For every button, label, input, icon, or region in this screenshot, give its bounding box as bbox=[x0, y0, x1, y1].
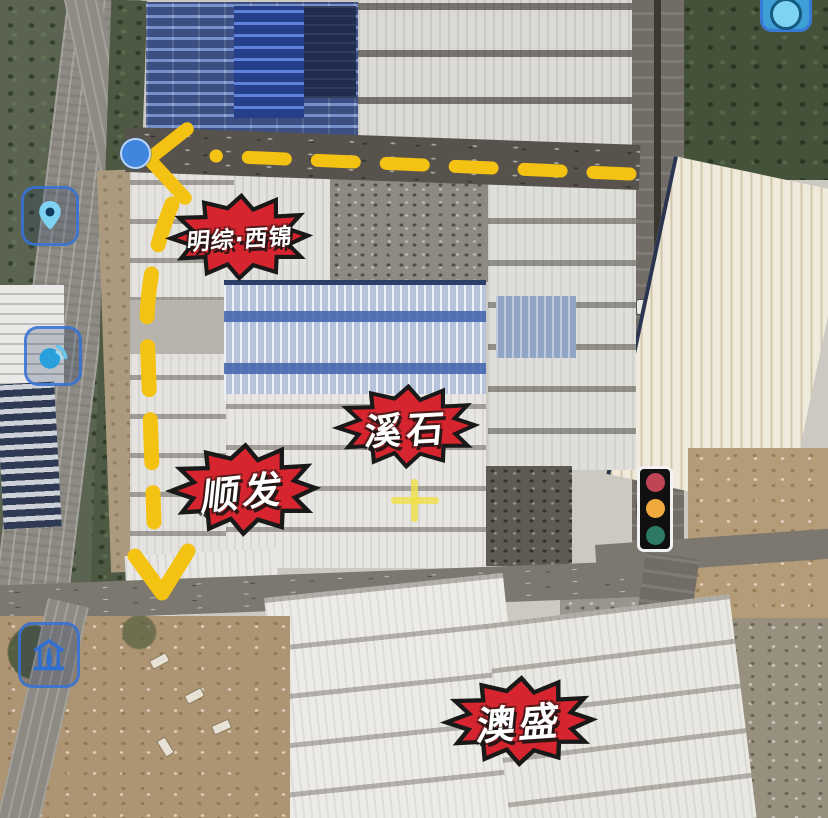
traffic-light-icon bbox=[637, 466, 673, 552]
badge-xishi[interactable]: 溪石 bbox=[331, 380, 483, 473]
vehicle bbox=[149, 652, 170, 670]
traffic-light-amber bbox=[646, 499, 665, 518]
building-icon bbox=[29, 634, 69, 676]
badge-label: 顺发 bbox=[199, 457, 288, 522]
badge-label: 溪石 bbox=[363, 397, 452, 456]
camera-marker-button[interactable] bbox=[760, 0, 812, 32]
map-region-solar-panels bbox=[304, 6, 356, 98]
map-region-warehouse-rows-north bbox=[358, 0, 636, 144]
traffic-light-red bbox=[646, 473, 665, 492]
crosshair-marker bbox=[391, 479, 439, 522]
badge-aosheng[interactable]: 澳盛 bbox=[439, 671, 601, 771]
badge-shunfa[interactable]: 顺发 bbox=[164, 438, 324, 541]
building-marker-button[interactable] bbox=[18, 622, 80, 688]
traffic-light-green bbox=[646, 526, 665, 545]
map-region-dark-building bbox=[486, 466, 572, 566]
vehicle bbox=[156, 736, 175, 757]
signal-icon bbox=[34, 337, 72, 375]
map-region-warehouse-east bbox=[488, 160, 636, 470]
roof-band bbox=[224, 363, 486, 374]
roof-band bbox=[224, 311, 486, 322]
location-pin-icon bbox=[32, 197, 68, 235]
badge-label: 明综·西锦 bbox=[186, 217, 295, 257]
map-region-blue-factory bbox=[146, 2, 360, 136]
map-region-solar-roof bbox=[0, 382, 62, 530]
map-region-gray-roof bbox=[130, 300, 234, 354]
camera-icon bbox=[770, 0, 802, 30]
vehicle bbox=[184, 687, 205, 705]
vehicle bbox=[211, 719, 232, 736]
map-region-blue-roof-bright bbox=[234, 6, 304, 118]
map-canvas[interactable]: 明综·西锦 溪石 顺发 澳盛 bbox=[0, 0, 828, 818]
signal-marker-button[interactable] bbox=[24, 326, 82, 386]
map-region-blue-roof-small bbox=[496, 296, 576, 358]
badge-mingzong-xijin[interactable]: 明综·西锦 bbox=[164, 189, 316, 285]
map-region-cluttered-roof bbox=[330, 170, 502, 282]
location-marker-button[interactable] bbox=[21, 186, 79, 246]
route-origin-dot[interactable] bbox=[120, 138, 151, 169]
badge-label: 澳盛 bbox=[474, 690, 566, 753]
